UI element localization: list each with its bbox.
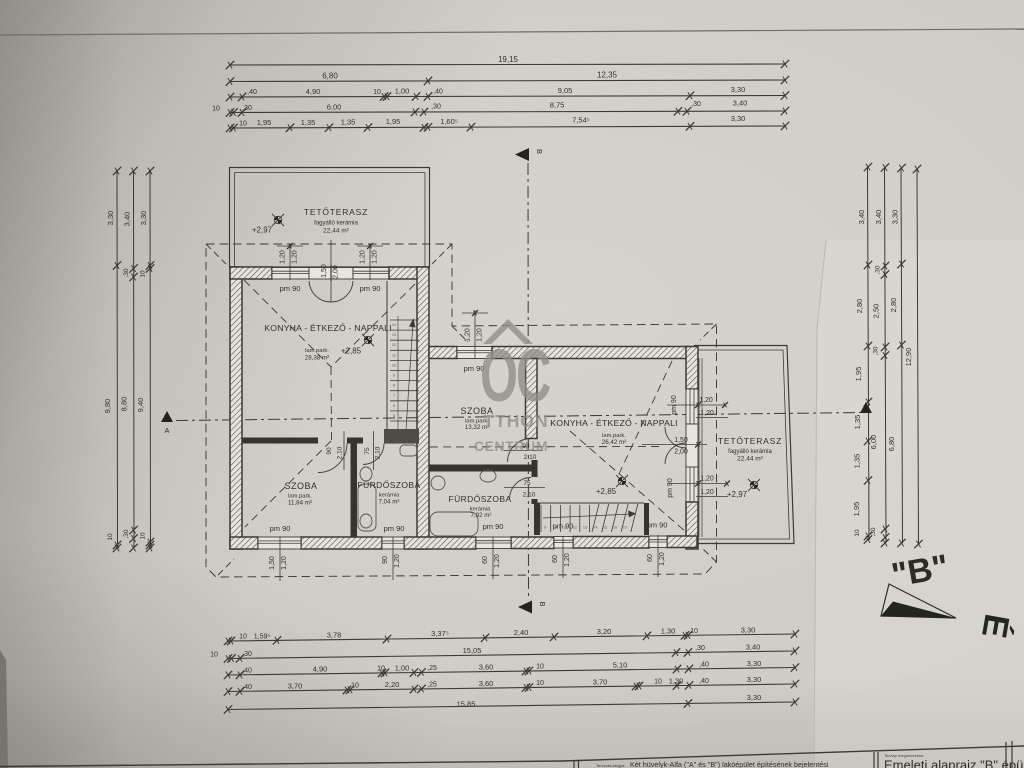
svg-text:7: 7: [393, 394, 395, 398]
svg-text:3,40: 3,40: [746, 642, 761, 651]
svg-text:8,80: 8,80: [120, 397, 129, 412]
svg-text:5: 5: [393, 414, 395, 418]
svg-text:1,20: 1,20: [494, 554, 501, 568]
svg-text:1,20: 1,20: [699, 397, 713, 404]
svg-text:1,30: 1,30: [661, 626, 676, 635]
svg-text:12: 12: [392, 343, 396, 347]
svg-text:10: 10: [351, 683, 359, 690]
svg-text:B: B: [538, 601, 547, 606]
svg-text:1,30: 1,30: [669, 676, 684, 685]
svg-text:3,20: 3,20: [597, 627, 612, 636]
svg-text:8,75: 8,75: [550, 101, 565, 110]
svg-text:3,30: 3,30: [731, 114, 746, 123]
svg-text:6,80: 6,80: [887, 437, 896, 452]
svg-text:,40: ,40: [699, 661, 709, 668]
svg-text:+2,85: +2,85: [341, 347, 362, 356]
svg-text:75: 75: [364, 447, 371, 455]
svg-text:7,04 m²: 7,04 m²: [379, 499, 400, 506]
svg-text:2,20: 2,20: [385, 680, 400, 689]
svg-text:3,40: 3,40: [123, 212, 132, 227]
svg-text:,25: ,25: [427, 682, 437, 689]
svg-text:pm 90: pm 90: [270, 524, 291, 533]
svg-text:+2,97: +2,97: [252, 226, 273, 235]
svg-text:,40: ,40: [699, 678, 709, 685]
svg-text:A: A: [164, 426, 169, 435]
svg-text:3,40: 3,40: [874, 210, 883, 225]
svg-text:5,10: 5,10: [613, 661, 628, 670]
svg-text:2,10: 2,10: [375, 446, 382, 459]
svg-text:,30: ,30: [123, 529, 130, 538]
svg-text:CENTRUM: CENTRUM: [474, 438, 548, 454]
svg-text:4,90: 4,90: [313, 665, 328, 674]
svg-text:+2,97: +2,97: [727, 490, 748, 499]
svg-text:,40: ,40: [242, 684, 252, 691]
svg-text:3,30: 3,30: [106, 211, 115, 226]
svg-text:3,30: 3,30: [731, 85, 746, 94]
svg-text:15: 15: [603, 526, 607, 530]
svg-text:1,20: 1,20: [659, 552, 666, 566]
svg-text:pm 90: pm 90: [667, 478, 674, 498]
svg-text:,40: ,40: [242, 668, 252, 675]
svg-text:10: 10: [140, 270, 147, 278]
svg-text:3,78: 3,78: [327, 631, 342, 640]
svg-text:11: 11: [392, 353, 396, 357]
svg-text:4,90: 4,90: [306, 87, 321, 96]
svg-text:2,10: 2,10: [524, 454, 537, 461]
svg-text:26,42 m²: 26,42 m²: [602, 439, 626, 446]
svg-text:,30: ,30: [870, 527, 877, 536]
svg-text:10: 10: [212, 106, 220, 113]
svg-text:10: 10: [690, 628, 698, 635]
svg-text:15,85: 15,85: [457, 700, 476, 709]
svg-text:17: 17: [623, 526, 627, 530]
svg-text:1,95: 1,95: [257, 118, 272, 127]
svg-text:10: 10: [373, 89, 381, 96]
svg-text:60: 60: [552, 555, 559, 563]
svg-text:Emeleti alaprajz "B" épü: Emeleti alaprajz "B" épü: [884, 758, 1023, 768]
svg-text:lam.park.: lam.park.: [305, 348, 329, 354]
svg-text:"B": "B": [889, 548, 952, 595]
svg-text:13: 13: [583, 526, 587, 530]
svg-text:3,30: 3,30: [747, 693, 762, 702]
svg-text:3,40: 3,40: [733, 99, 748, 108]
svg-text:90: 90: [326, 447, 333, 455]
svg-text:9: 9: [393, 374, 395, 378]
svg-text:90: 90: [382, 556, 389, 564]
svg-text:1,35: 1,35: [853, 415, 862, 430]
svg-text:6: 6: [393, 404, 395, 408]
svg-text:,30: ,30: [242, 105, 252, 112]
svg-text:OC: OC: [480, 335, 550, 418]
svg-text:,30: ,30: [242, 651, 252, 658]
svg-text:10: 10: [239, 634, 247, 641]
svg-text:KONYHA - ÉTKEZŐ - NAPPALI: KONYHA - ÉTKEZŐ - NAPPALI: [550, 418, 677, 428]
svg-text:1,35: 1,35: [301, 118, 316, 127]
svg-text:11,84 m²: 11,84 m²: [288, 500, 312, 507]
svg-text:2,50: 2,50: [872, 304, 881, 319]
svg-text:3,70: 3,70: [593, 677, 608, 686]
svg-text:,40: ,40: [433, 89, 443, 96]
svg-text:14: 14: [392, 323, 396, 327]
svg-text:28,38 m²: 28,38 m²: [305, 355, 329, 362]
svg-text:3,30: 3,30: [891, 210, 900, 225]
svg-text:12,90: 12,90: [904, 348, 913, 367]
svg-text:,25: ,25: [427, 665, 437, 672]
svg-text:60: 60: [482, 556, 489, 564]
svg-text:1,20: 1,20: [360, 250, 367, 264]
svg-text:pm 90: pm 90: [384, 524, 405, 533]
svg-text:15,05: 15,05: [463, 646, 482, 655]
svg-text:TETŐTERASZ: TETŐTERASZ: [718, 436, 782, 446]
svg-text:3,30: 3,30: [139, 211, 148, 226]
svg-text:B: B: [535, 149, 544, 154]
svg-text:1,00: 1,00: [395, 87, 410, 96]
svg-text:9,80: 9,80: [103, 399, 112, 414]
svg-text:1,95: 1,95: [854, 367, 863, 382]
svg-text:1,20: 1,20: [372, 250, 379, 264]
svg-text:10: 10: [536, 680, 544, 687]
svg-text:10: 10: [140, 532, 147, 540]
svg-text:16: 16: [613, 526, 617, 530]
svg-text:1,20: 1,20: [564, 553, 571, 567]
svg-text:pm 90: pm 90: [647, 521, 668, 530]
svg-text:FÜRDŐSZOBA: FÜRDŐSZOBA: [357, 480, 420, 490]
svg-text:1,35: 1,35: [341, 118, 356, 127]
svg-text:SZOBA: SZOBA: [284, 481, 317, 491]
svg-text:9,40: 9,40: [136, 398, 145, 413]
svg-text:3,30: 3,30: [747, 659, 762, 668]
svg-text:14: 14: [593, 526, 597, 530]
svg-text:1,95: 1,95: [852, 502, 861, 517]
svg-text:É: É: [974, 611, 1017, 641]
svg-text:10: 10: [107, 533, 114, 541]
svg-text:KONYHA - ÉTKEZŐ - NAPPALI: KONYHA - ÉTKEZŐ - NAPPALI: [264, 323, 391, 333]
svg-text:1,20: 1,20: [465, 328, 472, 342]
svg-text:10: 10: [210, 652, 218, 659]
svg-text:1,35: 1,35: [853, 454, 862, 469]
svg-text:3,37⁵: 3,37⁵: [431, 629, 449, 638]
svg-text:60: 60: [647, 554, 654, 562]
svg-text:75: 75: [523, 480, 531, 487]
svg-text:,30: ,30: [123, 268, 130, 277]
svg-text:,30: ,30: [695, 645, 705, 652]
svg-text:10: 10: [239, 121, 247, 128]
svg-text:3,60: 3,60: [479, 679, 494, 688]
svg-text:1,50: 1,50: [674, 437, 688, 444]
svg-text:7,54⁵: 7,54⁵: [572, 116, 590, 125]
svg-text:Tervezés tárgya:: Tervezés tárgya:: [596, 763, 625, 768]
svg-text:10: 10: [536, 664, 544, 671]
svg-text:1,50: 1,50: [269, 556, 276, 570]
svg-text:9,05: 9,05: [558, 86, 573, 95]
svg-text:2,10: 2,10: [523, 492, 536, 499]
svg-text:fagyálló kerámia: fagyálló kerámia: [728, 449, 772, 455]
svg-text:3,30: 3,30: [741, 625, 756, 634]
svg-text:6,00: 6,00: [869, 435, 878, 450]
svg-text:7,92 m²: 7,92 m²: [471, 512, 492, 519]
svg-text:,30: ,30: [691, 101, 701, 108]
svg-text:1,20: 1,20: [700, 410, 714, 417]
svg-text:TTHON: TTHON: [483, 411, 548, 431]
svg-text:10: 10: [392, 363, 396, 367]
svg-text:1,20: 1,20: [700, 489, 714, 496]
svg-text:10: 10: [377, 666, 385, 673]
svg-text:pm 90: pm 90: [360, 284, 381, 293]
svg-text:2,00: 2,00: [674, 449, 688, 456]
svg-text:1,00: 1,00: [395, 663, 410, 672]
svg-text:12,35: 12,35: [597, 71, 618, 80]
svg-text:1,59⁵: 1,59⁵: [254, 633, 271, 640]
svg-text:1,20: 1,20: [292, 250, 299, 264]
svg-text:pm 90: pm 90: [280, 284, 301, 293]
svg-text:9: 9: [544, 526, 546, 530]
svg-text:FÜRDŐSZOBA: FÜRDŐSZOBA: [448, 494, 511, 504]
svg-text:1,20: 1,20: [281, 556, 288, 570]
svg-text:1,20: 1,20: [280, 250, 287, 264]
svg-text:2,10: 2,10: [337, 446, 344, 459]
svg-text:pm 90: pm 90: [553, 522, 574, 531]
svg-text:22,44 m²: 22,44 m²: [323, 228, 349, 235]
svg-text:1,20: 1,20: [394, 554, 401, 568]
svg-text:TETŐTERASZ: TETŐTERASZ: [304, 207, 368, 217]
svg-text:3,60: 3,60: [479, 662, 494, 671]
svg-text:,30: ,30: [875, 265, 882, 274]
svg-text:+2,85: +2,85: [596, 487, 617, 496]
svg-text:2,40: 2,40: [514, 628, 529, 637]
svg-text:1,50: 1,50: [321, 264, 328, 278]
svg-text:1,20: 1,20: [700, 476, 714, 483]
svg-text:,30: ,30: [431, 104, 441, 111]
svg-text:1,95: 1,95: [386, 117, 401, 126]
svg-text:fagyálló kerámia: fagyálló kerámia: [314, 221, 358, 227]
svg-text:pm 90: pm 90: [483, 522, 504, 531]
svg-text:10: 10: [654, 679, 662, 686]
svg-text:13: 13: [392, 333, 396, 337]
svg-text:2,80: 2,80: [889, 298, 898, 313]
svg-text:1,60⁵: 1,60⁵: [440, 117, 458, 126]
svg-text:,40: ,40: [247, 89, 257, 96]
svg-text:Két hüvelyk-Alfa ("A" és "B"): Két hüvelyk-Alfa ("A" és "B") lakóépület…: [630, 760, 829, 768]
svg-text:3,40: 3,40: [857, 210, 866, 225]
svg-text:12: 12: [573, 526, 577, 530]
svg-text:2,00: 2,00: [333, 265, 340, 279]
svg-text:19,15: 19,15: [498, 55, 519, 64]
svg-text:3,70: 3,70: [288, 681, 303, 690]
svg-text:2,80: 2,80: [855, 299, 864, 314]
svg-text:8: 8: [393, 384, 395, 388]
svg-text:3,30: 3,30: [747, 675, 762, 684]
svg-text:,30: ,30: [873, 346, 880, 355]
svg-text:6,80: 6,80: [322, 72, 338, 81]
svg-text:10: 10: [854, 529, 861, 537]
svg-text:6,00: 6,00: [327, 103, 342, 112]
svg-text:22,44 m²: 22,44 m²: [737, 456, 763, 463]
